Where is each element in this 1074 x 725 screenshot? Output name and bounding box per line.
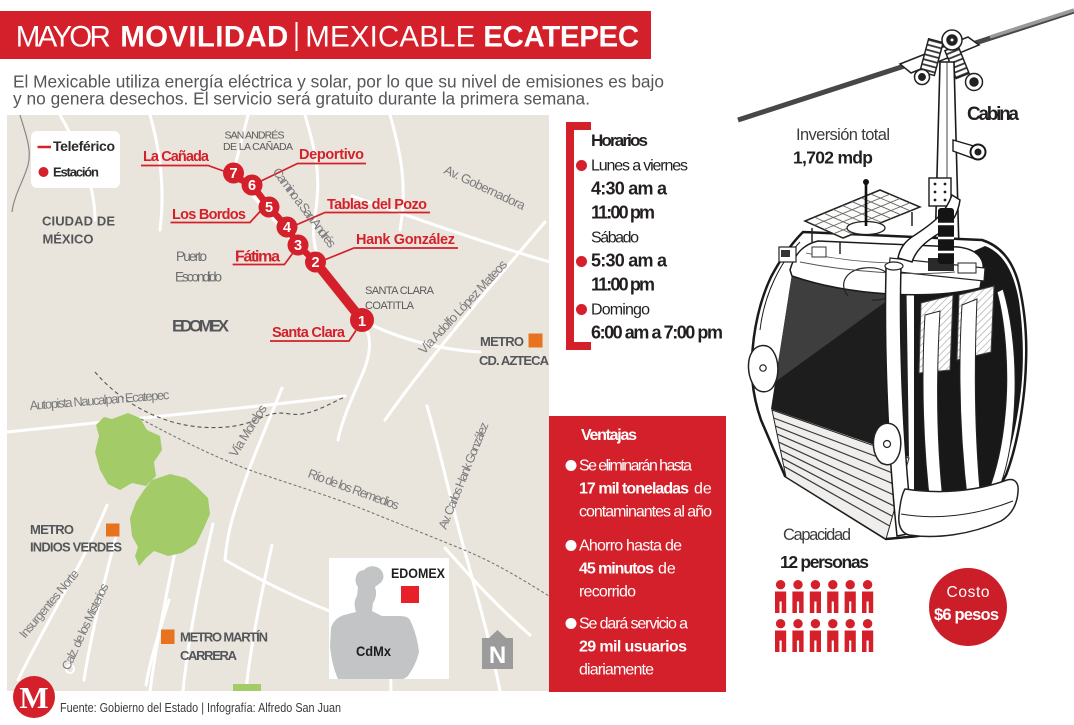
svg-text:7: 7 xyxy=(229,166,237,182)
svg-text:4:30 am a: 4:30 am a xyxy=(591,179,668,199)
svg-text:ECATEPEC: ECATEPEC xyxy=(483,21,639,54)
svg-text:EDOMEX: EDOMEX xyxy=(391,566,445,581)
svg-text:EDOMEX: EDOMEX xyxy=(172,317,230,336)
svg-text:11:00 pm: 11:00 pm xyxy=(591,275,655,295)
svg-text:N: N xyxy=(489,642,506,669)
svg-text:Tablas del Pozo: Tablas del Pozo xyxy=(327,197,427,213)
svg-text:Cabina: Cabina xyxy=(967,104,1019,125)
svg-text:INDIOS VERDES: INDIOS VERDES xyxy=(30,540,122,555)
svg-text:MÉXICO: MÉXICO xyxy=(43,232,94,247)
svg-text:diariamente: diariamente xyxy=(579,662,654,679)
svg-text:MAYOR: MAYOR xyxy=(16,21,111,54)
svg-text:Río de los Remedios: Río de los Remedios xyxy=(306,466,402,513)
svg-text:6:00 am a 7:00 pm: 6:00 am a 7:00 pm xyxy=(591,323,723,343)
svg-text:Fátima: Fátima xyxy=(235,249,280,266)
svg-text:CARRERA: CARRERA xyxy=(180,648,238,663)
svg-text:La Cañada: La Cañada xyxy=(143,149,210,165)
svg-text:6: 6 xyxy=(248,178,256,194)
svg-text:Los Bordos: Los Bordos xyxy=(172,207,246,223)
svg-text:Av. Gobernadora: Av. Gobernadora xyxy=(442,162,529,213)
svg-text:Escondido: Escondido xyxy=(175,270,222,285)
svg-text:2: 2 xyxy=(311,255,319,271)
svg-text:recorrido: recorrido xyxy=(579,584,636,601)
svg-text:5:30 am a: 5:30 am a xyxy=(591,251,668,271)
svg-text:3: 3 xyxy=(294,238,302,254)
svg-text:Ventajas: Ventajas xyxy=(581,427,637,444)
svg-text:CIUDAD DE: CIUDAD DE xyxy=(42,214,115,229)
svg-text:de: de xyxy=(694,481,712,498)
svg-text:CdMx: CdMx xyxy=(356,643,391,659)
svg-text:11:00 pm: 11:00 pm xyxy=(591,203,655,223)
svg-text:17 mil toneladas: 17 mil toneladas xyxy=(579,481,689,498)
svg-text:de: de xyxy=(658,561,676,578)
svg-text:METRO: METRO xyxy=(30,522,74,537)
svg-text:Autopista Naucalpan Ecatepec: Autopista Naucalpan Ecatepec xyxy=(29,387,170,413)
svg-text:Se dará servicio a: Se dará servicio a xyxy=(579,616,688,633)
svg-text:Fuente: Gobierno del Estado |: Fuente: Gobierno del Estado | Infografía… xyxy=(60,701,341,715)
svg-text:Deportivo: Deportivo xyxy=(299,147,364,163)
svg-text:Puerto: Puerto xyxy=(176,249,207,264)
svg-text:$6 pesos: $6 pesos xyxy=(934,606,999,624)
svg-text:Sábado: Sábado xyxy=(591,230,639,247)
svg-text:45 minutos: 45 minutos xyxy=(579,561,654,578)
svg-text:Hank González: Hank González xyxy=(356,232,455,248)
svg-text:METRO MARTÍN: METRO MARTÍN xyxy=(180,630,268,645)
svg-text:12 personas: 12 personas xyxy=(780,552,869,572)
svg-text:Av. Carlos Hank González: Av. Carlos Hank González xyxy=(436,420,492,531)
svg-text:Horarios: Horarios xyxy=(591,131,648,150)
svg-text:29 mil usuarios: 29 mil usuarios xyxy=(579,639,687,656)
svg-text:MOVILIDAD: MOVILIDAD xyxy=(120,21,288,54)
svg-text:SANTA CLARA: SANTA CLARA xyxy=(365,285,435,297)
svg-text:Ahorro hasta de: Ahorro hasta de xyxy=(579,538,682,555)
svg-text:Costo: Costo xyxy=(947,584,990,601)
svg-text:DE LA CAÑADA: DE LA CAÑADA xyxy=(223,140,293,153)
svg-text:Lunes a viernes: Lunes a viernes xyxy=(591,158,688,175)
svg-text:Insurgentes Norte: Insurgentes Norte xyxy=(17,567,82,641)
svg-text:y no genera desechos. El servi: y no genera desechos. El servicio será g… xyxy=(13,89,590,109)
svg-text:4: 4 xyxy=(283,220,291,236)
svg-text:Capacidad: Capacidad xyxy=(783,526,851,544)
svg-text:SAN ANDRÉS: SAN ANDRÉS xyxy=(225,129,285,142)
svg-text:contaminantes al año: contaminantes al año xyxy=(579,504,712,521)
svg-text:Teleférico: Teleférico xyxy=(53,138,115,154)
svg-text:M: M xyxy=(19,680,48,715)
svg-text:Estación: Estación xyxy=(53,165,99,180)
svg-text:CD. AZTECA: CD. AZTECA xyxy=(479,353,550,368)
svg-text:Santa Clara: Santa Clara xyxy=(272,325,346,341)
svg-text:Vía Morelos: Vía Morelos xyxy=(226,401,270,459)
svg-text:METRO: METRO xyxy=(480,334,524,349)
svg-text:Calz. de los Misterios: Calz. de los Misterios xyxy=(59,581,111,672)
svg-text:1: 1 xyxy=(358,314,366,330)
svg-text:MEXICABLE: MEXICABLE xyxy=(305,21,475,54)
svg-text:5: 5 xyxy=(265,200,273,216)
svg-text:COATITLA: COATITLA xyxy=(365,300,415,312)
svg-text:1,702 mdp: 1,702 mdp xyxy=(793,148,873,168)
svg-text:Inversión total: Inversión total xyxy=(796,126,890,144)
svg-text:Domingo: Domingo xyxy=(591,302,650,319)
svg-text:Se eliminarán hasta: Se eliminarán hasta xyxy=(579,458,692,475)
